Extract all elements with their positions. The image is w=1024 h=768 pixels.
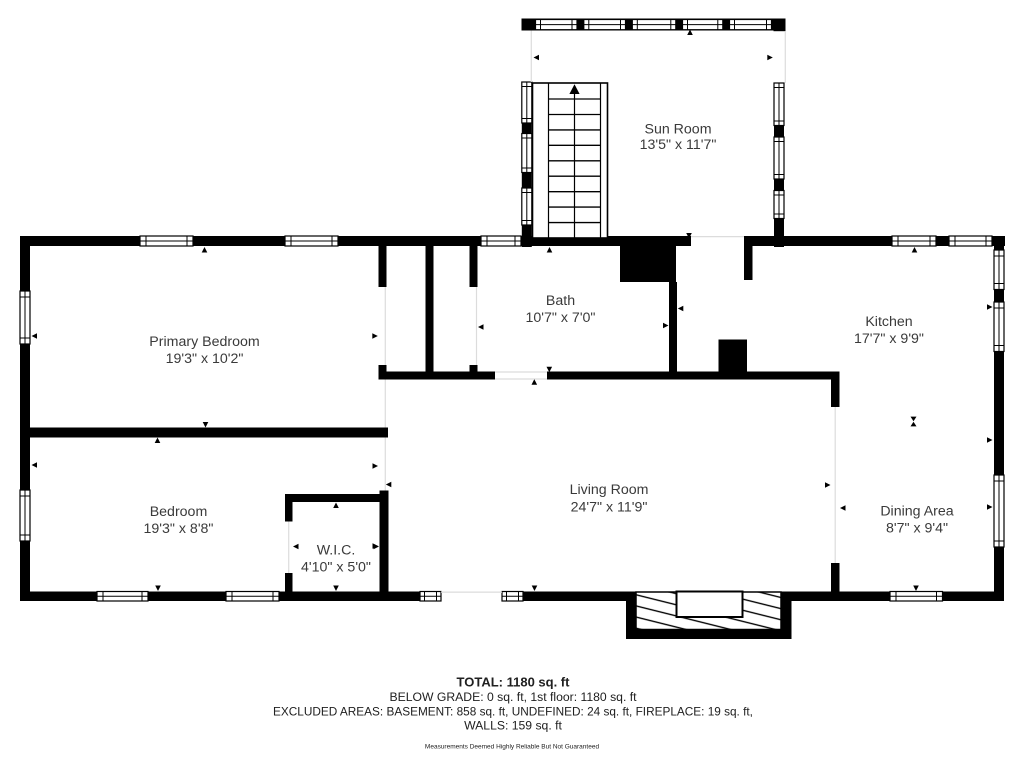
- svg-text:Dining Area: Dining Area: [880, 503, 953, 519]
- svg-text:Bedroom: Bedroom: [150, 504, 208, 520]
- svg-text:19'3" x 10'2": 19'3" x 10'2": [166, 351, 244, 367]
- svg-text:Primary Bedroom: Primary Bedroom: [149, 334, 259, 350]
- svg-text:4'10" x 5'0": 4'10" x 5'0": [301, 560, 371, 576]
- svg-text:Bath: Bath: [546, 293, 575, 309]
- svg-text:Measurements Deemed Highly Rel: Measurements Deemed Highly Reliable But …: [425, 743, 600, 750]
- svg-text:EXCLUDED AREAS: BASEMENT: 858: EXCLUDED AREAS: BASEMENT: 858 sq. ft, UN…: [273, 705, 753, 719]
- svg-text:Living Room: Living Room: [570, 482, 649, 498]
- svg-text:8'7" x 9'4": 8'7" x 9'4": [886, 520, 948, 536]
- svg-text:19'3" x 8'8": 19'3" x 8'8": [144, 521, 214, 537]
- svg-text:BELOW GRADE: 0 sq. ft, 1st flo: BELOW GRADE: 0 sq. ft, 1st floor: 1180 s…: [389, 690, 637, 704]
- svg-text:Kitchen: Kitchen: [865, 314, 912, 330]
- svg-text:WALLS: 159 sq. ft: WALLS: 159 sq. ft: [464, 718, 562, 732]
- svg-text:TOTAL: 1180 sq. ft: TOTAL: 1180 sq. ft: [457, 675, 571, 690]
- svg-text:24'7" x 11'9": 24'7" x 11'9": [571, 499, 648, 515]
- svg-text:W.I.C.: W.I.C.: [317, 543, 356, 559]
- svg-text:13'5" x 11'7": 13'5" x 11'7": [640, 137, 717, 153]
- svg-text:17'7" x 9'9": 17'7" x 9'9": [854, 331, 924, 347]
- svg-text:Sun Room: Sun Room: [644, 122, 711, 138]
- svg-text:10'7" x 7'0": 10'7" x 7'0": [526, 310, 596, 326]
